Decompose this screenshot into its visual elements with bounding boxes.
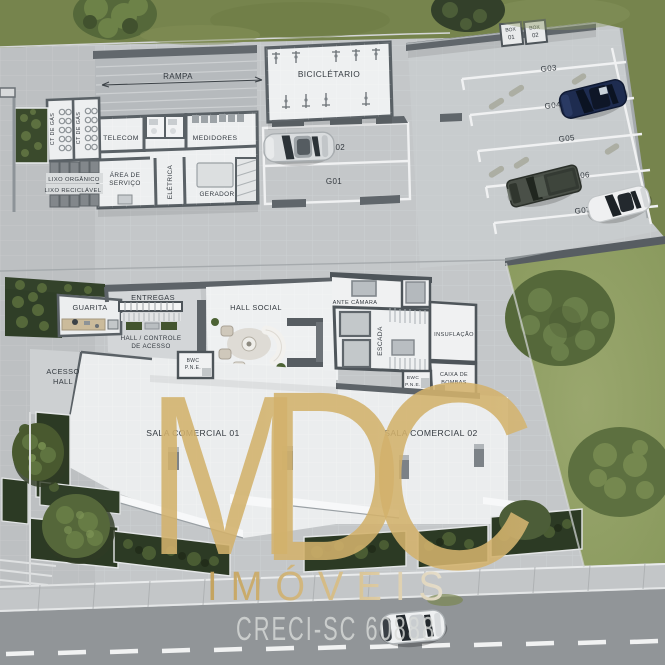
svg-text:02: 02 (532, 33, 540, 40)
svg-text:ANTE CÂMARA: ANTE CÂMARA (333, 299, 378, 306)
svg-text:MEDIDORES: MEDIDORES (193, 135, 238, 142)
svg-text:HALL: HALL (53, 377, 73, 386)
svg-text:CT DE GÁS: CT DE GÁS (75, 112, 82, 145)
svg-text:G03: G03 (540, 63, 557, 74)
svg-text:G01: G01 (326, 177, 342, 186)
svg-text:ELÉTRICA: ELÉTRICA (165, 164, 174, 199)
svg-text:HALL / CONTROLE: HALL / CONTROLE (121, 335, 182, 342)
svg-text:ACESSO: ACESSO (46, 367, 79, 376)
svg-text:TELECOM: TELECOM (103, 135, 139, 142)
svg-text:BICICLÉTARIO: BICICLÉTARIO (298, 69, 360, 79)
svg-text:01: 01 (508, 35, 516, 42)
svg-text:CT DE GÁS: CT DE GÁS (49, 113, 56, 146)
svg-text:SERVIÇO: SERVIÇO (109, 180, 140, 187)
svg-text:ÁREA DE: ÁREA DE (110, 170, 141, 179)
svg-text:HALL SOCIAL: HALL SOCIAL (230, 303, 282, 312)
svg-text:G04: G04 (544, 100, 561, 111)
svg-text:RAMPA: RAMPA (163, 72, 193, 81)
svg-text:GUARITA: GUARITA (72, 303, 107, 312)
svg-text:LIXO RECICLÁVEL: LIXO RECICLÁVEL (45, 187, 102, 194)
svg-text:CRECI-SC 60888: CRECI-SC 60888 (236, 610, 436, 647)
svg-text:IMÓVEIS: IMÓVEIS (207, 563, 457, 609)
svg-text:GERADOR: GERADOR (199, 191, 234, 198)
svg-text:BOX: BOX (505, 27, 517, 34)
svg-text:LIXO ORGÂNICO: LIXO ORGÂNICO (48, 176, 100, 183)
svg-text:ENTREGAS: ENTREGAS (131, 293, 175, 302)
svg-text:G05: G05 (558, 133, 575, 144)
